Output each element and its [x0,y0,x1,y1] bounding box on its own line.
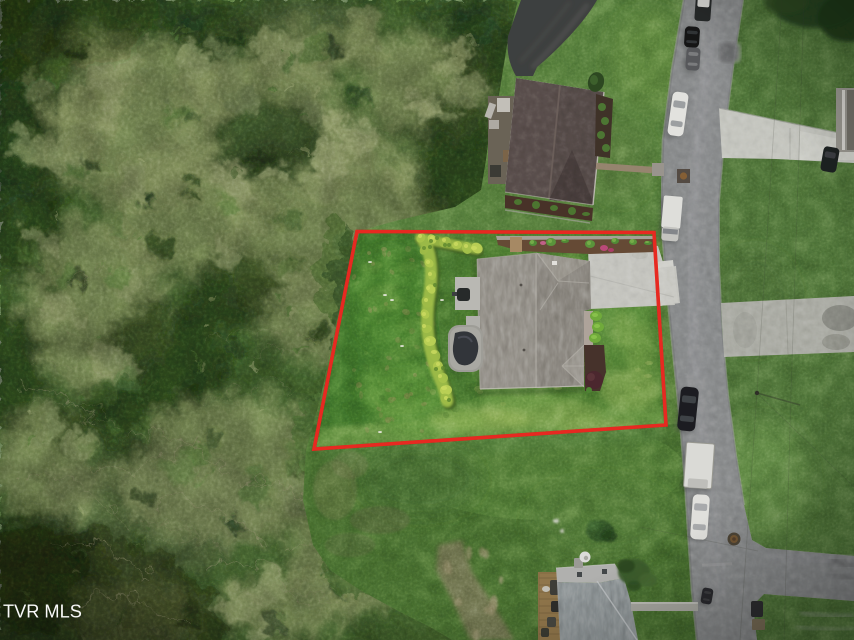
svg-text:TVR MLS: TVR MLS [3,602,82,622]
